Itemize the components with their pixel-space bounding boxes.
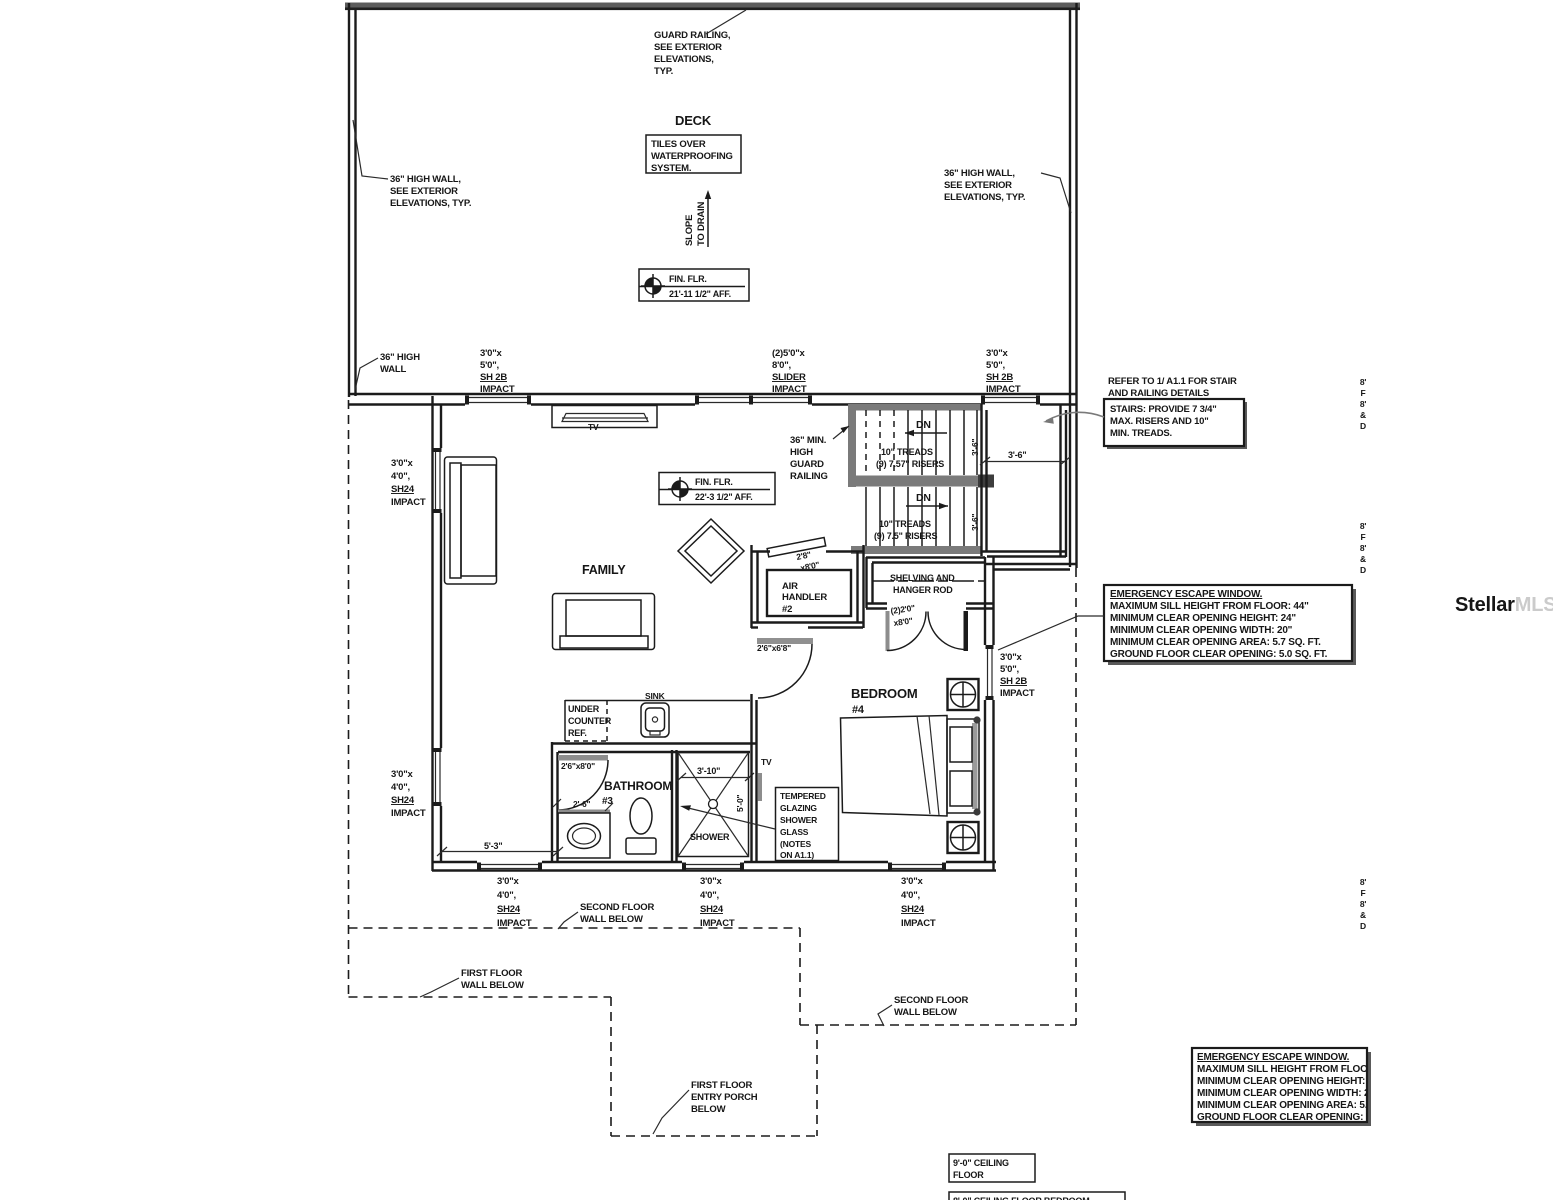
svg-text:ELEVATIONS,: ELEVATIONS,: [654, 54, 714, 65]
svg-text:FLOOR: FLOOR: [953, 1170, 984, 1180]
svg-text:DN: DN: [916, 492, 931, 504]
svg-text:10" TREADS: 10" TREADS: [879, 519, 931, 529]
svg-text:SINK: SINK: [645, 691, 666, 701]
svg-text:&: &: [1360, 910, 1366, 920]
svg-text:21'-11 1/2" AFF.: 21'-11 1/2" AFF.: [669, 289, 731, 299]
svg-text:5'0",: 5'0",: [986, 360, 1005, 371]
svg-text:4'0",: 4'0",: [497, 890, 516, 901]
svg-text:SHOWER: SHOWER: [780, 815, 817, 825]
svg-text:SH24: SH24: [901, 904, 925, 915]
svg-text:3'0"x: 3'0"x: [901, 876, 924, 887]
svg-text:3'-6": 3'-6": [970, 438, 980, 456]
svg-text:GLASS: GLASS: [780, 827, 809, 837]
svg-text:MAX. RISERS AND 10": MAX. RISERS AND 10": [1110, 416, 1209, 427]
svg-text:SYSTEM.: SYSTEM.: [651, 163, 691, 174]
svg-text:36" MIN.: 36" MIN.: [790, 435, 826, 446]
svg-text:MINIMUM CLEAR OPENING HEIGHT:: MINIMUM CLEAR OPENING HEIGHT: 24": [1197, 1076, 1383, 1087]
svg-text:TYP.: TYP.: [654, 66, 673, 77]
svg-text:F: F: [1361, 532, 1366, 542]
svg-text:RAILING: RAILING: [790, 471, 828, 482]
svg-text:IMPACT: IMPACT: [480, 384, 515, 395]
svg-text:(NOTES: (NOTES: [780, 839, 811, 849]
svg-text:9'-0" CEILING: 9'-0" CEILING: [953, 1158, 1009, 1168]
svg-text:ELEVATIONS, TYP.: ELEVATIONS, TYP.: [390, 198, 471, 209]
svg-text:TV: TV: [761, 757, 772, 767]
svg-text:SH24: SH24: [700, 904, 724, 915]
svg-text:GROUND FLOOR CLEAR OPENING: 5.: GROUND FLOOR CLEAR OPENING: 5.0 SQ. FT.: [1110, 649, 1328, 660]
svg-text:#3: #3: [602, 796, 613, 807]
svg-text:5'-0": 5'-0": [735, 794, 745, 812]
svg-text:4'0",: 4'0",: [391, 782, 410, 793]
svg-text:D: D: [1360, 565, 1366, 575]
svg-text:IMPACT: IMPACT: [986, 384, 1021, 395]
svg-text:10" TREADS: 10" TREADS: [881, 447, 933, 457]
svg-text:8': 8': [1360, 399, 1367, 409]
svg-text:REF.: REF.: [568, 728, 587, 738]
svg-text:AIR: AIR: [782, 581, 798, 592]
svg-text:3'0"x: 3'0"x: [986, 348, 1009, 359]
svg-text:2'6"x6'8": 2'6"x6'8": [757, 643, 791, 653]
svg-text:8': 8': [1360, 877, 1367, 887]
svg-text:4'0",: 4'0",: [391, 471, 410, 482]
svg-text:8': 8': [1360, 521, 1367, 531]
svg-text:SH24: SH24: [391, 795, 415, 806]
svg-text:3'0"x: 3'0"x: [497, 876, 520, 887]
svg-text:BEDROOM: BEDROOM: [851, 686, 918, 701]
svg-text:SECOND FLOOR: SECOND FLOOR: [580, 902, 654, 913]
svg-text:MINIMUM CLEAR OPENING AREA: 5.: MINIMUM CLEAR OPENING AREA: 5.7 SQ. FT.: [1110, 637, 1321, 648]
svg-text:36" HIGH: 36" HIGH: [380, 352, 420, 363]
svg-text:SECOND FLOOR: SECOND FLOOR: [894, 995, 968, 1006]
svg-text:StellarMLS: StellarMLS: [1455, 594, 1553, 616]
svg-text:SEE EXTERIOR: SEE EXTERIOR: [654, 42, 722, 53]
svg-text:8': 8': [1360, 899, 1367, 909]
svg-text:GROUND FLOOR CLEAR OPENING: 5.: GROUND FLOOR CLEAR OPENING: 5.0 S: [1197, 1112, 1389, 1123]
svg-text:GLAZING: GLAZING: [780, 803, 817, 813]
svg-text:IMPACT: IMPACT: [1000, 688, 1035, 699]
svg-text:SH 2B: SH 2B: [986, 372, 1013, 383]
svg-text:AND RAILING DETAILS: AND RAILING DETAILS: [1108, 388, 1209, 399]
svg-text:8': 8': [1360, 377, 1367, 387]
svg-text:3'0"x: 3'0"x: [391, 458, 414, 469]
svg-text:UNDER: UNDER: [568, 704, 600, 714]
svg-text:DN: DN: [916, 419, 931, 431]
svg-text:IMPACT: IMPACT: [901, 918, 936, 929]
svg-text:3'0"x: 3'0"x: [1000, 652, 1023, 663]
svg-text:4'0",: 4'0",: [700, 890, 719, 901]
svg-text:STAIRS: PROVIDE 7 3/4": STAIRS: PROVIDE 7 3/4": [1110, 404, 1217, 415]
svg-text:WALL BELOW: WALL BELOW: [580, 914, 643, 925]
svg-text:3'0"x: 3'0"x: [480, 348, 503, 359]
svg-text:3'-10": 3'-10": [697, 766, 720, 776]
svg-text:3'-6": 3'-6": [1008, 450, 1026, 460]
svg-text:36" HIGH WALL,: 36" HIGH WALL,: [390, 174, 461, 185]
svg-text:TV: TV: [588, 422, 599, 432]
svg-text:DECK: DECK: [675, 113, 712, 128]
svg-text:36" HIGH WALL,: 36" HIGH WALL,: [944, 168, 1015, 179]
svg-text:&: &: [1360, 410, 1366, 420]
svg-text:GUARD RAILING,: GUARD RAILING,: [654, 30, 730, 41]
svg-text:WALL: WALL: [380, 364, 407, 375]
svg-text:ON A1.1): ON A1.1): [780, 850, 814, 860]
svg-text:3'0"x: 3'0"x: [391, 769, 414, 780]
svg-text:SHELVING AND: SHELVING AND: [890, 573, 955, 583]
svg-text:MINIMUM CLEAR OPENING AREA: 5.: MINIMUM CLEAR OPENING AREA: 5.7 SQ: [1197, 1100, 1390, 1111]
svg-text:HANGER ROD: HANGER ROD: [893, 585, 953, 595]
svg-text:8': 8': [1360, 543, 1367, 553]
svg-text:MINIMUM CLEAR OPENING WIDTH: 2: MINIMUM CLEAR OPENING WIDTH: 20": [1197, 1088, 1380, 1099]
svg-text:SH24: SH24: [391, 484, 415, 495]
svg-text:BATHROOM: BATHROOM: [604, 779, 672, 793]
svg-text:5'-3": 5'-3": [484, 841, 502, 851]
svg-text:(9) 7.5" RISERS: (9) 7.5" RISERS: [874, 531, 937, 541]
svg-text:WALL BELOW: WALL BELOW: [461, 980, 524, 991]
svg-text:MAXIMUM SILL HEIGHT FROM FLOOR: MAXIMUM SILL HEIGHT FROM FLOOR: 44": [1110, 601, 1309, 612]
svg-text:FIN. FLR.: FIN. FLR.: [669, 274, 707, 284]
svg-text:WATERPROOFING: WATERPROOFING: [651, 151, 733, 162]
svg-text:COUNTER: COUNTER: [568, 716, 612, 726]
svg-text:SH24: SH24: [497, 904, 521, 915]
svg-text:SH 2B: SH 2B: [480, 372, 507, 383]
svg-text:EMERGENCY ESCAPE WINDOW.: EMERGENCY ESCAPE WINDOW.: [1197, 1052, 1350, 1063]
svg-text:EMERGENCY ESCAPE WINDOW.: EMERGENCY ESCAPE WINDOW.: [1110, 589, 1263, 600]
svg-text:FIRST FLOOR: FIRST FLOOR: [461, 968, 522, 979]
svg-text:TO DRAIN: TO DRAIN: [696, 202, 707, 246]
svg-text:SLOPE: SLOPE: [684, 215, 695, 246]
svg-text:SHOWER: SHOWER: [690, 832, 730, 842]
svg-text:22'-3 1/2" AFF.: 22'-3 1/2" AFF.: [695, 492, 753, 502]
svg-text:BELOW: BELOW: [691, 1104, 726, 1115]
svg-text:MINIMUM CLEAR OPENING WIDTH: 2: MINIMUM CLEAR OPENING WIDTH: 20": [1110, 625, 1293, 636]
svg-text:ELEVATIONS, TYP.: ELEVATIONS, TYP.: [944, 192, 1025, 203]
svg-text:&: &: [1360, 554, 1366, 564]
svg-text:HIGH: HIGH: [790, 447, 813, 458]
svg-text:MAXIMUM SILL HEIGHT FROM FLOOR: MAXIMUM SILL HEIGHT FROM FLOOR: 44": [1197, 1064, 1396, 1075]
svg-text:5'0",: 5'0",: [1000, 664, 1019, 675]
svg-text:REFER TO 1/ A1.1 FOR STAIR: REFER TO 1/ A1.1 FOR STAIR: [1108, 376, 1237, 387]
svg-text:WALL BELOW: WALL BELOW: [894, 1007, 957, 1018]
svg-text:3'0"x: 3'0"x: [700, 876, 723, 887]
svg-text:3'-6": 3'-6": [970, 513, 980, 531]
svg-text:4'0",: 4'0",: [901, 890, 920, 901]
svg-text:2'6"x8'0": 2'6"x8'0": [561, 761, 595, 771]
svg-text:FIN. FLR.: FIN. FLR.: [695, 477, 733, 487]
svg-text:SEE EXTERIOR: SEE EXTERIOR: [944, 180, 1012, 191]
svg-text:IMPACT: IMPACT: [391, 497, 426, 508]
svg-text:8'0",: 8'0",: [772, 360, 791, 371]
svg-text:(2)5'0"x: (2)5'0"x: [772, 348, 806, 359]
svg-text:ENTRY PORCH: ENTRY PORCH: [691, 1092, 758, 1103]
svg-text:GUARD: GUARD: [790, 459, 824, 470]
svg-text:TILES OVER: TILES OVER: [651, 139, 706, 150]
svg-text:SH 2B: SH 2B: [1000, 676, 1027, 687]
svg-text:FIRST FLOOR: FIRST FLOOR: [691, 1080, 752, 1091]
svg-text:2'-6": 2'-6": [573, 799, 591, 809]
svg-text:MINIMUM CLEAR OPENING HEIGHT:: MINIMUM CLEAR OPENING HEIGHT: 24": [1110, 613, 1296, 624]
svg-text:SLIDER: SLIDER: [772, 372, 806, 383]
svg-text:(9) 7.57" RISERS: (9) 7.57" RISERS: [876, 459, 944, 469]
svg-text:D: D: [1360, 421, 1366, 431]
svg-text:IMPACT: IMPACT: [391, 808, 426, 819]
svg-text:SEE EXTERIOR: SEE EXTERIOR: [390, 186, 458, 197]
svg-text:8'-0" CEILING FLOOR BEDROOM: 8'-0" CEILING FLOOR BEDROOM: [953, 1196, 1090, 1200]
svg-text:FAMILY: FAMILY: [582, 563, 626, 577]
svg-text:TEMPERED: TEMPERED: [780, 791, 826, 801]
svg-text:D: D: [1360, 921, 1366, 931]
svg-text:#4: #4: [852, 704, 865, 716]
svg-text:IMPACT: IMPACT: [772, 384, 807, 395]
svg-text:#2: #2: [782, 604, 792, 615]
svg-text:MIN. TREADS.: MIN. TREADS.: [1110, 428, 1172, 439]
svg-text:HANDLER: HANDLER: [782, 592, 827, 603]
svg-text:F: F: [1361, 888, 1366, 898]
svg-text:F: F: [1361, 388, 1366, 398]
svg-text:5'0",: 5'0",: [480, 360, 499, 371]
